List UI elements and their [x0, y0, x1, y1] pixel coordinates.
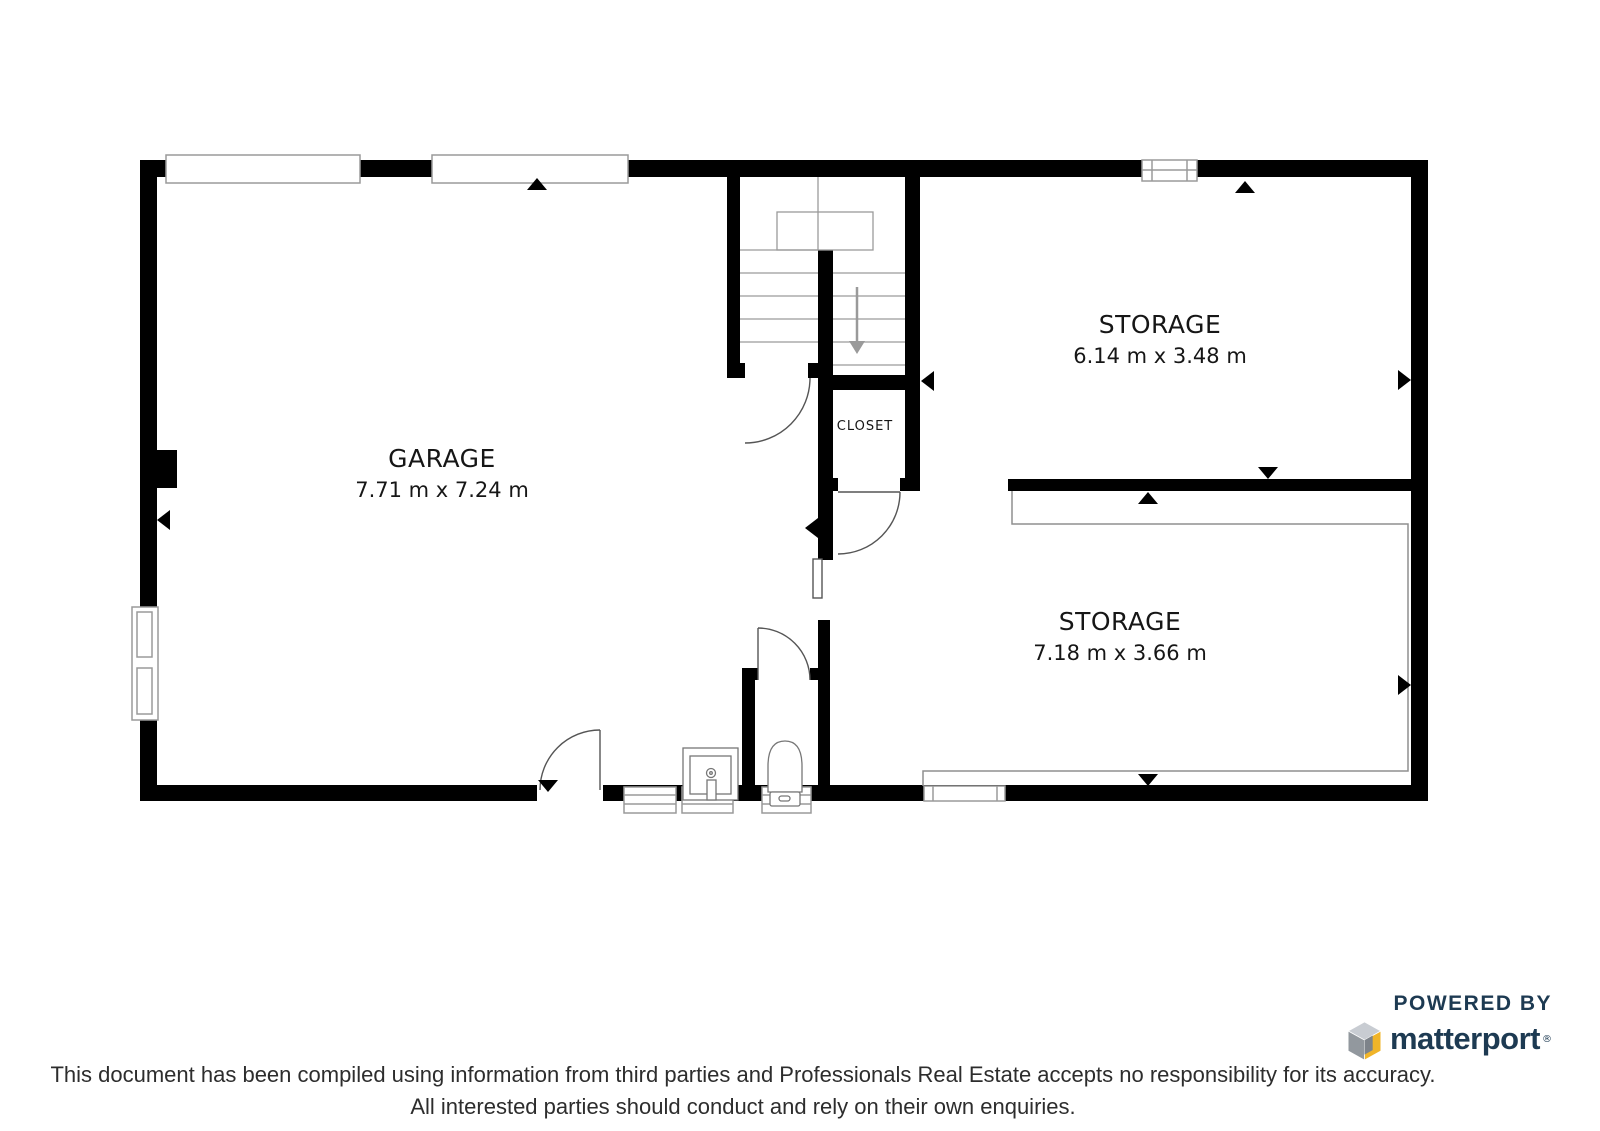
- matterport-wordmark: matterport: [1390, 1021, 1540, 1057]
- storage-divider-wall: [1008, 479, 1428, 491]
- floorplan-canvas: GARAGE 7.71 m x 7.24 m STORAGE 6.14 m x …: [0, 0, 1600, 1131]
- marker-right-storage-lower: [1398, 675, 1411, 695]
- wall-pillar: [157, 450, 177, 488]
- stair-right-flight-bottom-wall: [833, 375, 920, 390]
- toilet-icon: [768, 741, 802, 806]
- matterport-branding: POWERED BY matterport ®: [1346, 992, 1552, 1059]
- marker-up-storage-top: [1235, 181, 1255, 193]
- garage-door-opening-1: [166, 155, 360, 183]
- room-name: STORAGE: [1033, 606, 1207, 637]
- room-label-storage-upper: STORAGE 6.14 m x 3.48 m: [1073, 309, 1247, 370]
- interior-walls: [727, 177, 1428, 801]
- marker-up-divider: [1138, 492, 1158, 504]
- stair-upper-landing: [777, 212, 873, 250]
- hall-door-leaf: [813, 559, 822, 598]
- marker-left-garage-wall: [157, 510, 170, 530]
- room-dimensions: 6.14 m x 3.48 m: [1073, 343, 1247, 369]
- closet-doorway: [838, 478, 900, 491]
- stairs-down-arrow-icon: [849, 287, 865, 354]
- stair-left-wall: [727, 177, 740, 378]
- garage-door-opening-2: [432, 155, 628, 183]
- marker-down-divider: [1258, 467, 1278, 479]
- matterport-cube-icon: [1346, 1021, 1383, 1061]
- room-label-storage-lower: STORAGE 7.18 m x 3.66 m: [1033, 606, 1207, 667]
- room-dimensions: 7.71 m x 7.24 m: [355, 477, 529, 503]
- hall-right-wall: [818, 620, 830, 801]
- room-name: GARAGE: [355, 443, 529, 474]
- floorplan-drawing: [0, 0, 1600, 1131]
- room-name: CLOSET: [837, 419, 894, 435]
- stair-center-divider-wall: [818, 250, 833, 560]
- window-bottom-storage: [924, 786, 1005, 801]
- stair-door: [745, 378, 810, 443]
- powered-by-text: POWERED BY: [1346, 992, 1552, 1016]
- room-label-garage: GARAGE 7.71 m x 7.24 m: [355, 443, 529, 504]
- marker-left-hall: [805, 518, 818, 538]
- sink-icon: [683, 748, 738, 800]
- registered-mark: ®: [1542, 1034, 1552, 1045]
- toilet-left-wall: [742, 668, 755, 801]
- room-name: STORAGE: [1073, 309, 1247, 340]
- closet-door: [838, 492, 900, 554]
- window-left-garage: [132, 607, 158, 720]
- marker-left-storage-upper: [921, 371, 934, 391]
- window-top-storage: [1142, 160, 1197, 181]
- disclaimer-line-1: This document has been compiled using in…: [0, 1062, 1486, 1088]
- room-dimensions: 7.18 m x 3.66 m: [1033, 640, 1207, 666]
- disclaimer-line-2: All interested parties should conduct an…: [0, 1094, 1486, 1120]
- stair-closet-right-wall: [905, 177, 920, 491]
- window-bottom-a: [624, 787, 676, 813]
- toilet-doorway: [758, 668, 810, 680]
- stair-bottom-stub-left: [727, 363, 745, 378]
- marker-right-storage-upper: [1398, 370, 1411, 390]
- marker-down-storage-bottom: [1138, 774, 1158, 786]
- room-label-closet: CLOSET: [837, 419, 894, 435]
- doors: [540, 378, 900, 790]
